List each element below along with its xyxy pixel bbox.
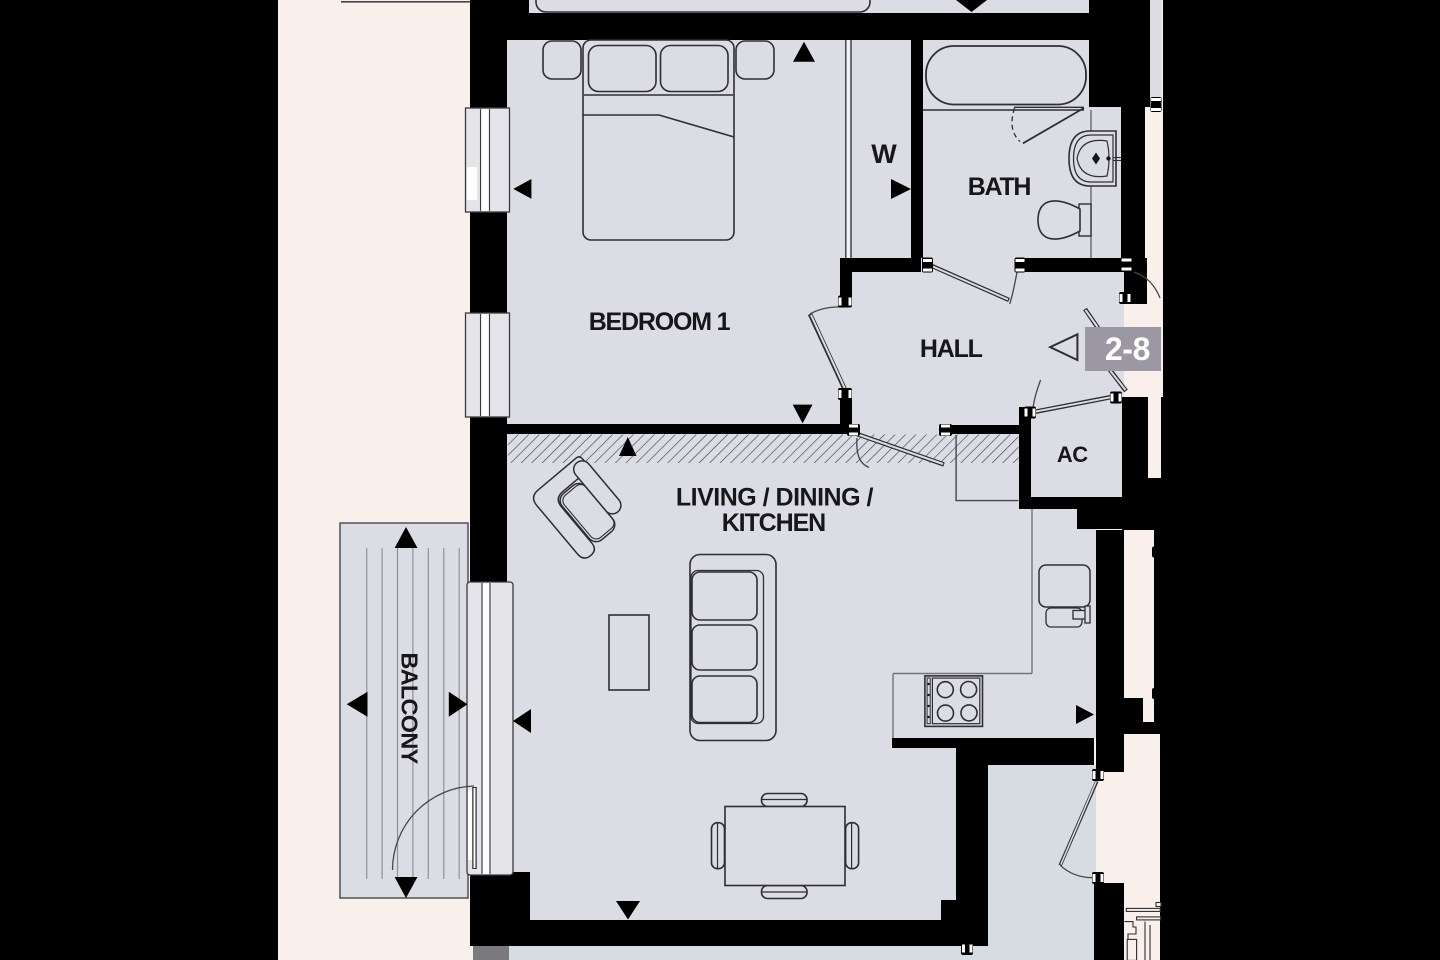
- svg-text:KITCHEN: KITCHEN: [722, 509, 825, 537]
- svg-text:HALL: HALL: [920, 335, 983, 363]
- svg-text:AC: AC: [1057, 442, 1088, 467]
- svg-text:BEDROOM 1: BEDROOM 1: [589, 308, 731, 336]
- svg-text:2-8: 2-8: [1105, 331, 1150, 367]
- svg-text:BATH: BATH: [968, 173, 1031, 201]
- svg-text:BALCONY: BALCONY: [397, 652, 423, 764]
- svg-text:LIVING / DINING /: LIVING / DINING /: [676, 484, 874, 512]
- svg-text:W: W: [871, 139, 897, 169]
